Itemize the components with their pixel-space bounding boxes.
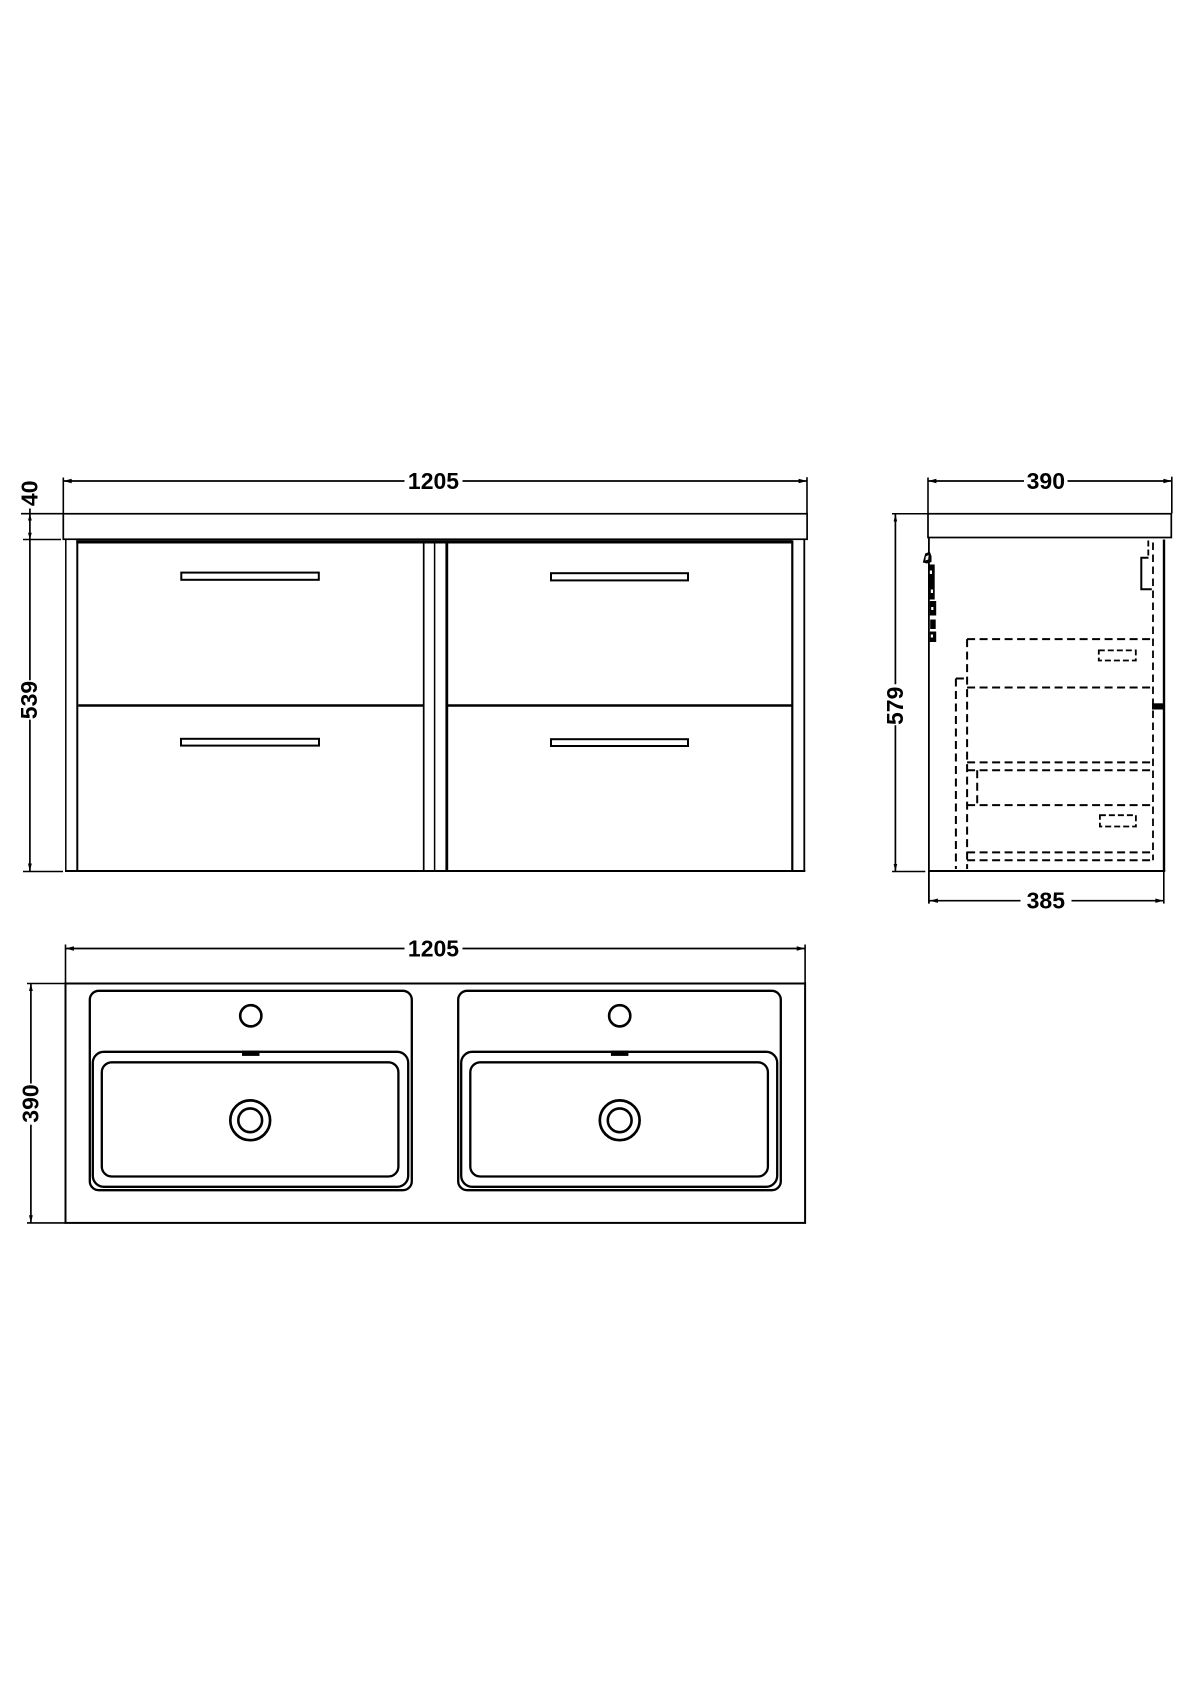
svg-text:1205: 1205	[408, 935, 459, 961]
svg-text:390: 390	[1027, 468, 1065, 494]
svg-text:385: 385	[1027, 888, 1066, 914]
svg-text:40: 40	[17, 481, 43, 507]
svg-text:579: 579	[882, 687, 908, 725]
svg-text:539: 539	[16, 681, 42, 719]
svg-text:390: 390	[17, 1084, 43, 1122]
svg-text:1205: 1205	[408, 468, 459, 494]
